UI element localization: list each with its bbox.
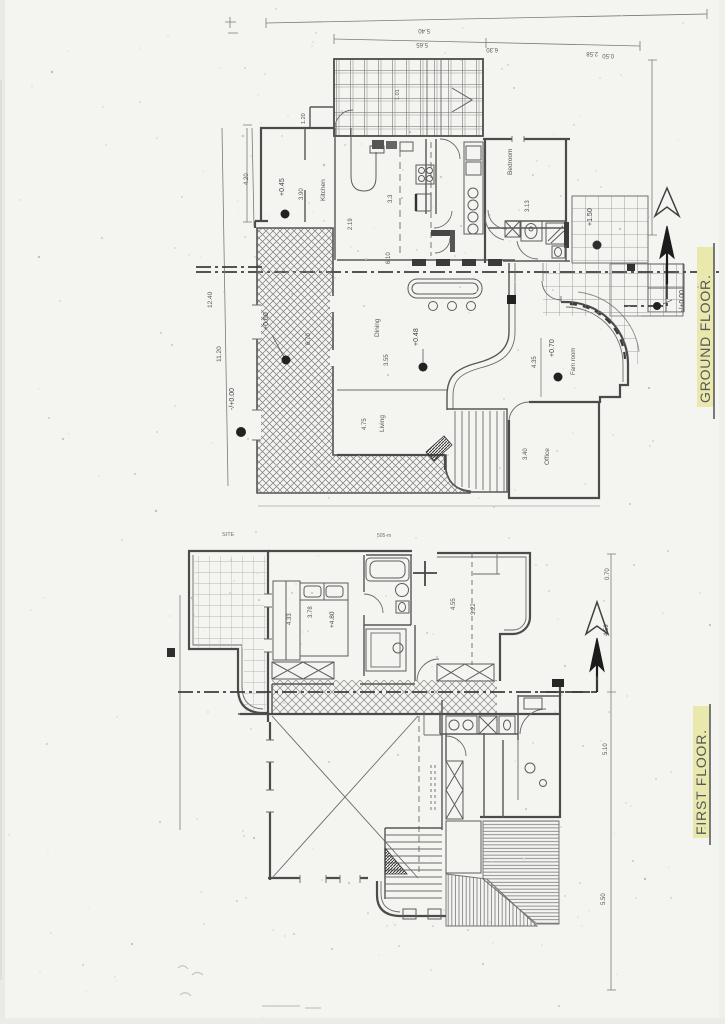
svg-text:3.3: 3.3: [388, 194, 394, 203]
svg-text:SITE: SITE: [222, 532, 235, 538]
svg-text:Office: Office: [544, 448, 551, 465]
svg-text:4.20: 4.20: [244, 173, 250, 185]
svg-text:3.13: 3.13: [525, 200, 531, 212]
svg-text:Dining: Dining: [374, 318, 381, 337]
svg-text:Fam room: Fam room: [571, 348, 577, 375]
svg-text:2.19: 2.19: [348, 218, 354, 230]
svg-text:+0.48: +0.48: [413, 328, 420, 346]
svg-text:1.20: 1.20: [301, 113, 307, 124]
svg-text:6.10: 6.10: [386, 252, 392, 264]
svg-text:+0.60: +0.60: [263, 312, 270, 330]
svg-text:0.70: 0.70: [605, 568, 611, 580]
svg-text:6.70: 6.70: [306, 333, 312, 345]
svg-text:0.50: 0.50: [602, 52, 614, 58]
svg-text:5.40: 5.40: [418, 27, 430, 33]
svg-text:4.35: 4.35: [532, 356, 538, 368]
svg-text:3.22: 3.22: [471, 603, 477, 615]
svg-text:FIRST FLOOR.: FIRST FLOOR.: [693, 729, 709, 835]
svg-text:3.90: 3.90: [299, 188, 305, 200]
svg-text:Bedroom: Bedroom: [507, 149, 514, 175]
svg-text:3.78: 3.78: [308, 606, 314, 618]
svg-text:12.40: 12.40: [207, 291, 214, 308]
svg-text:2.58: 2.58: [586, 50, 598, 56]
svg-text:505-m: 505-m: [377, 533, 391, 539]
svg-text:-/+0.00: -/+0.00: [229, 388, 236, 410]
svg-text:+4.80: +4.80: [329, 611, 336, 628]
svg-text:6.30: 6.30: [486, 46, 498, 52]
svg-text:Living: Living: [379, 415, 386, 432]
svg-text:3.55: 3.55: [384, 354, 390, 366]
svg-text:3.40: 3.40: [523, 448, 529, 460]
svg-text:4.75: 4.75: [362, 418, 368, 430]
svg-text:4.55: 4.55: [451, 598, 457, 610]
svg-text:GROUND FLOOR.: GROUND FLOOR.: [697, 274, 713, 403]
svg-text:5.65: 5.65: [416, 41, 428, 47]
svg-text:11.20: 11.20: [216, 346, 223, 362]
svg-text:1.01: 1.01: [395, 89, 401, 100]
svg-text:+0.45: +0.45: [279, 178, 286, 196]
svg-text:4.33: 4.33: [287, 613, 293, 625]
svg-text:-/+0.00: -/+0.00: [679, 290, 686, 312]
svg-text:+1.50: +1.50: [587, 208, 594, 226]
svg-text:5.10: 5.10: [603, 743, 609, 755]
svg-text:Kitchen: Kitchen: [320, 179, 327, 201]
svg-text:+0.70: +0.70: [549, 339, 556, 357]
svg-text:5.50: 5.50: [601, 893, 607, 905]
